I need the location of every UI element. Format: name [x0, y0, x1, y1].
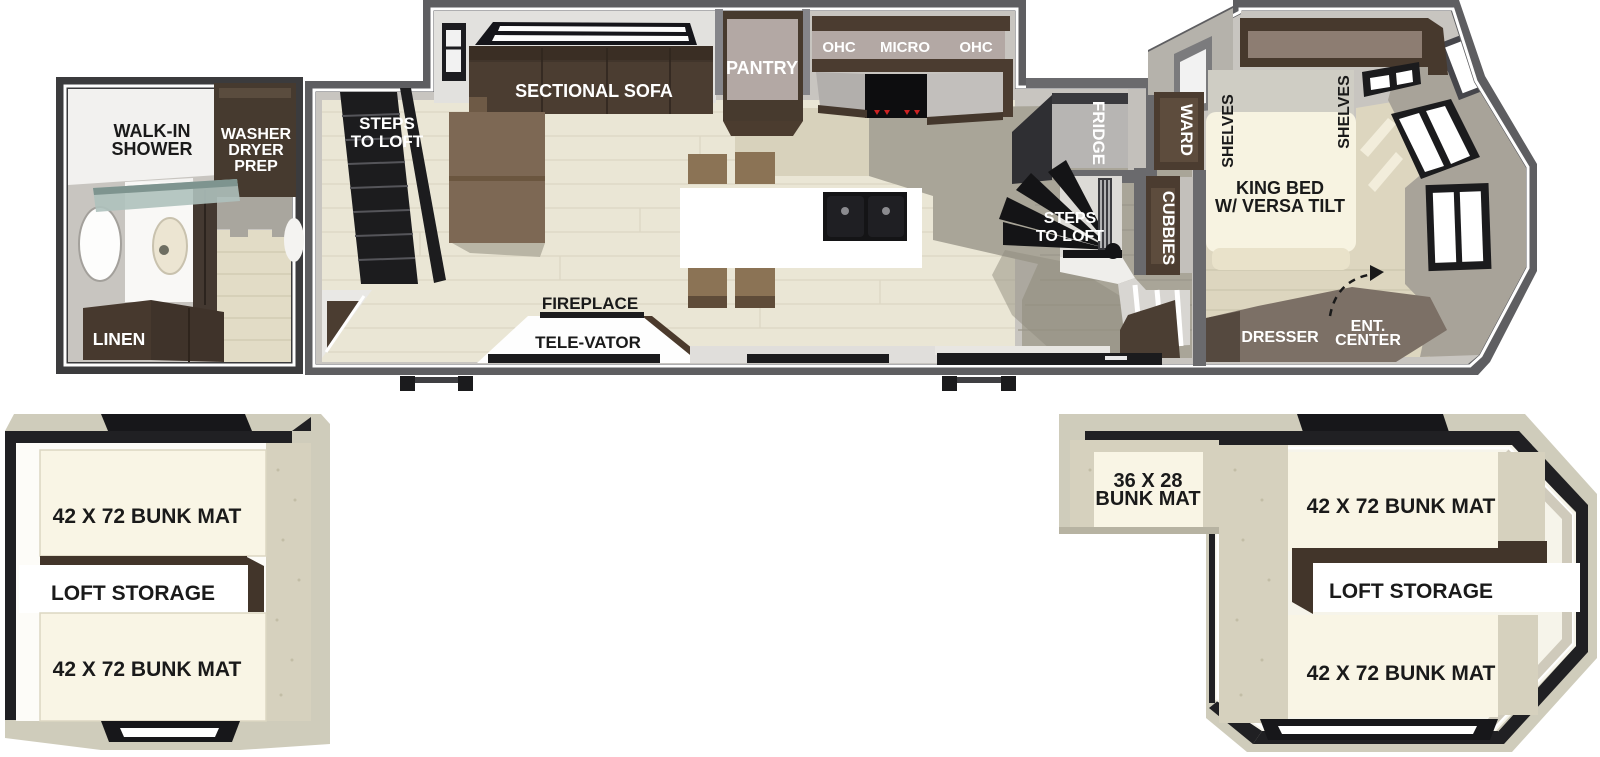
svg-text:WALK-IN: WALK-IN	[114, 121, 191, 141]
svg-text:LOFT STORAGE: LOFT STORAGE	[1329, 580, 1493, 603]
svg-text:PANTRY: PANTRY	[726, 58, 798, 78]
svg-text:42 X 72 BUNK MAT: 42 X 72 BUNK MAT	[1307, 495, 1496, 518]
svg-text:42 X 72 BUNK MAT: 42 X 72 BUNK MAT	[1307, 662, 1496, 685]
svg-text:SHELVES: SHELVES	[1336, 75, 1353, 149]
svg-text:OHC: OHC	[959, 39, 993, 56]
svg-text:OHC: OHC	[822, 39, 856, 56]
svg-text:42 X 72 BUNK MAT: 42 X 72 BUNK MAT	[53, 658, 242, 681]
svg-text:SHELVES: SHELVES	[1220, 94, 1237, 168]
svg-text:BUNK MAT: BUNK MAT	[1095, 488, 1200, 510]
svg-text:SHOWER: SHOWER	[112, 139, 193, 159]
svg-text:LINEN: LINEN	[93, 329, 146, 349]
svg-text:TO LOFT: TO LOFT	[351, 132, 424, 151]
svg-text:STEPS: STEPS	[1044, 210, 1097, 227]
svg-text:DRESSER: DRESSER	[1241, 329, 1319, 346]
svg-text:TO LOFT: TO LOFT	[1036, 228, 1104, 245]
svg-text:W/ VERSA TILT: W/ VERSA TILT	[1215, 196, 1345, 216]
svg-text:42 X 72 BUNK MAT: 42 X 72 BUNK MAT	[53, 505, 242, 528]
svg-text:WASHER: WASHER	[221, 126, 292, 143]
svg-text:TELE-VATOR: TELE-VATOR	[535, 333, 641, 352]
svg-text:DRYER: DRYER	[228, 142, 284, 159]
svg-text:MICRO: MICRO	[880, 39, 930, 56]
svg-text:SECTIONAL SOFA: SECTIONAL SOFA	[515, 81, 673, 101]
svg-text:FRIDGE: FRIDGE	[1089, 101, 1108, 165]
svg-text:STEPS: STEPS	[359, 114, 415, 133]
svg-text:LOFT STORAGE: LOFT STORAGE	[51, 582, 215, 605]
svg-text:PREP: PREP	[234, 158, 278, 175]
svg-text:CENTER: CENTER	[1335, 332, 1401, 349]
svg-text:CUBBIES: CUBBIES	[1159, 191, 1177, 265]
svg-text:KING BED: KING BED	[1236, 178, 1324, 198]
svg-text:FIREPLACE: FIREPLACE	[542, 294, 638, 313]
svg-text:WARD: WARD	[1177, 104, 1196, 156]
